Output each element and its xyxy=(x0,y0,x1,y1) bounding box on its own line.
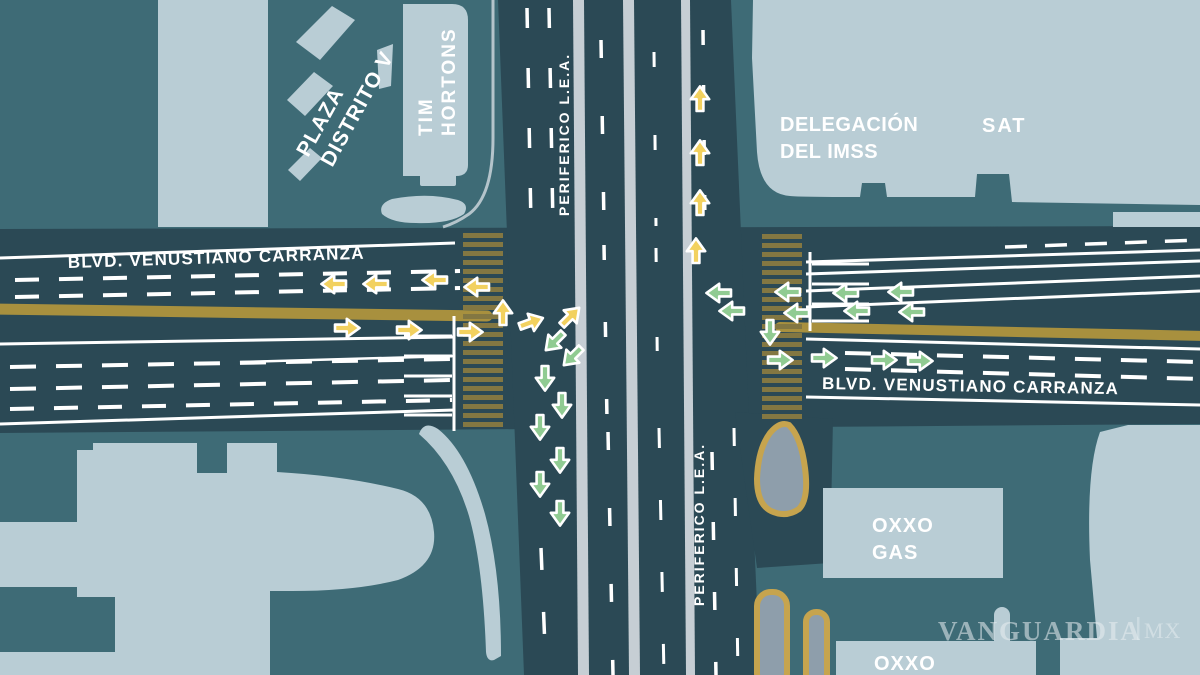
crosswalk-stripe xyxy=(463,422,503,427)
crosswalk-stripe xyxy=(762,279,802,284)
crosswalk-stripe xyxy=(762,396,802,401)
crosswalk-stripe xyxy=(463,242,503,247)
island-pill xyxy=(757,592,787,675)
crosswalk-stripe xyxy=(762,405,802,410)
crosswalk-stripe xyxy=(463,296,503,301)
label-oxxo: OXXO xyxy=(874,653,936,675)
watermark: VANGUARDIA MX xyxy=(938,616,1181,646)
label-imss-line2: DEL IMSS xyxy=(780,141,878,163)
label-tim-line1: TIM xyxy=(416,97,437,136)
crosswalk-stripe xyxy=(463,386,503,391)
road-label-periferico-south: PERIFERICO L.E.A. xyxy=(691,443,707,606)
label-sat: SAT xyxy=(982,115,1027,137)
crosswalk-stripe xyxy=(463,359,503,364)
building-imss-sat xyxy=(752,0,1200,205)
crosswalk-stripe xyxy=(463,251,503,256)
label-oxxo-gas-line1: OXXO xyxy=(872,515,934,537)
intersection-map: BLVD. VENUSTIANO CARRANZA BLVD. VENUSTIA… xyxy=(0,0,1200,675)
watermark-suffix: MX xyxy=(1144,618,1181,643)
crosswalk-stripe xyxy=(463,233,503,238)
road-label-periferico-north: PERIFERICO L.E.A. xyxy=(556,53,572,216)
crosswalk-stripe xyxy=(463,314,503,319)
crosswalk-stripe xyxy=(463,413,503,418)
median-bar-west xyxy=(0,309,487,316)
crosswalk-stripe xyxy=(463,368,503,373)
crosswalk-stripe xyxy=(762,252,802,257)
crosswalk-stripe xyxy=(762,387,802,392)
crosswalk-stripe xyxy=(762,261,802,266)
crosswalk-stripe xyxy=(762,414,802,419)
crosswalk-stripe xyxy=(463,377,503,382)
crosswalk-stripe xyxy=(762,270,802,275)
building-top-left xyxy=(158,0,268,227)
crosswalk-stripe xyxy=(463,269,503,274)
crosswalk-stripe xyxy=(463,395,503,400)
building-right-strip xyxy=(1113,212,1200,227)
label-tim-line2: HORTONS xyxy=(439,27,460,136)
watermark-brand: VANGUARDIA xyxy=(938,616,1142,646)
building-left-strip xyxy=(0,522,77,587)
crosswalk-stripe xyxy=(463,260,503,265)
crosswalk-stripe xyxy=(762,234,802,239)
island-pill xyxy=(806,612,827,675)
crosswalk-stripe xyxy=(463,404,503,409)
corner-island-nw xyxy=(381,196,466,223)
crosswalk-stripe xyxy=(762,369,802,374)
building-tim-hortons-annex xyxy=(420,174,456,186)
crosswalk-stripe xyxy=(762,378,802,383)
watermark-divider xyxy=(1137,617,1140,640)
label-oxxo-gas-line2: GAS xyxy=(872,542,918,564)
crosswalk-stripe xyxy=(762,243,802,248)
island-teardrop xyxy=(757,424,806,514)
crosswalk-stripe xyxy=(463,350,503,355)
label-imss-line1: DELEGACIÓN xyxy=(780,112,918,136)
